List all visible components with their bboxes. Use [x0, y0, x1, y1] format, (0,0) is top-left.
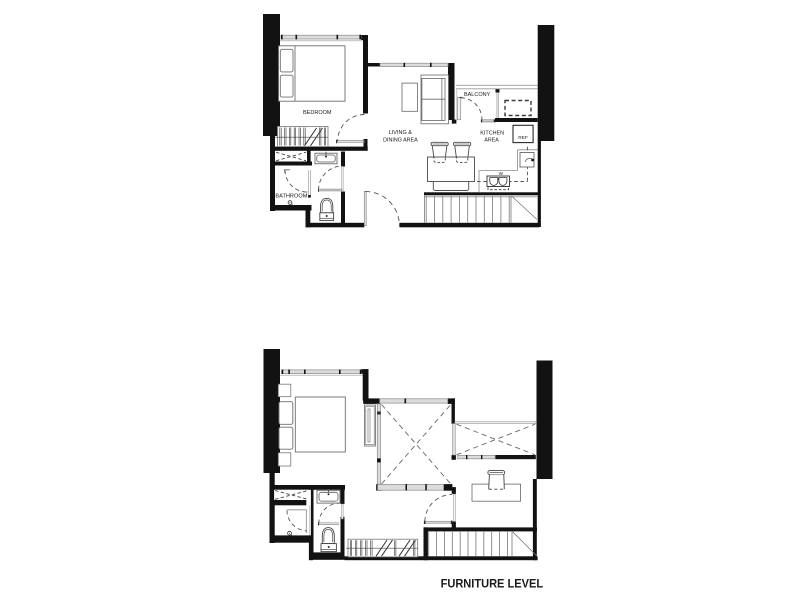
svg-text:BATHROOM: BATHROOM [275, 194, 307, 200]
svg-text:KITCHEN: KITCHEN [480, 130, 504, 136]
svg-text:BEDROOM: BEDROOM [303, 110, 332, 116]
svg-text:AREA: AREA [484, 138, 499, 144]
svg-text:FURNITURE LEVEL: FURNITURE LEVEL [441, 577, 544, 591]
svg-text:DINING AREA: DINING AREA [383, 137, 418, 143]
svg-text:BALCONY: BALCONY [464, 92, 490, 98]
svg-text:REF: REF [518, 135, 528, 141]
svg-text:W: W [499, 171, 504, 176]
svg-text:LIVING &: LIVING & [389, 130, 412, 136]
